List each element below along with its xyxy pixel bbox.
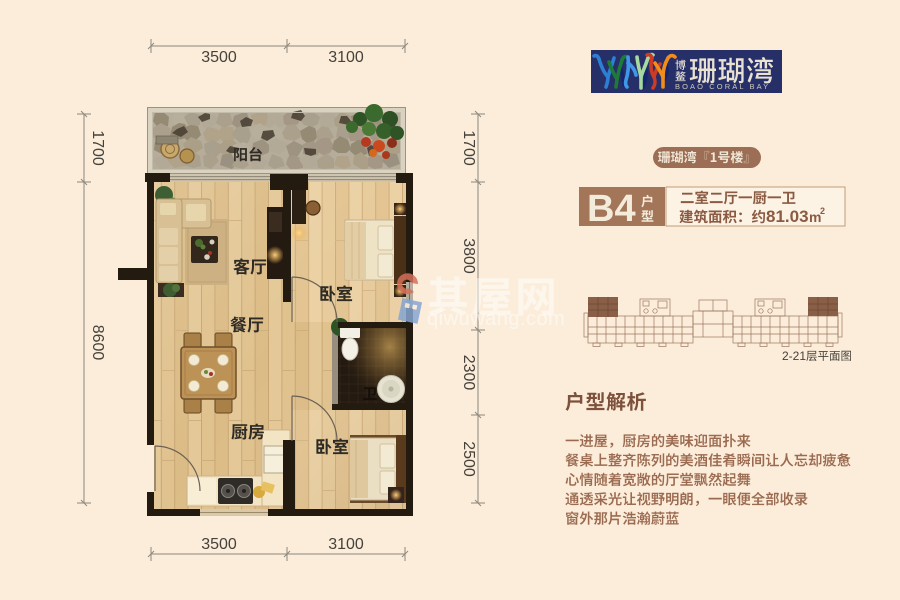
svg-text:81.03: 81.03 (766, 207, 809, 226)
svg-text:3100: 3100 (328, 536, 364, 553)
svg-text:2-21: 2-21 (782, 349, 806, 363)
svg-text:1700: 1700 (460, 130, 477, 166)
svg-text:2: 2 (820, 206, 825, 216)
svg-text:3100: 3100 (328, 49, 364, 66)
svg-text:B4: B4 (587, 188, 636, 230)
svg-text:1700: 1700 (89, 130, 106, 166)
svg-text:2500: 2500 (460, 441, 477, 477)
svg-text:BOAO CORAL BAY: BOAO CORAL BAY (675, 82, 770, 91)
svg-text:8600: 8600 (89, 325, 106, 361)
svg-text:2300: 2300 (460, 355, 477, 391)
svg-text:3800: 3800 (460, 238, 477, 274)
svg-text:qiwuwang.com: qiwuwang.com (427, 308, 565, 330)
svg-text:3500: 3500 (201, 49, 237, 66)
svg-text:3500: 3500 (201, 536, 237, 553)
